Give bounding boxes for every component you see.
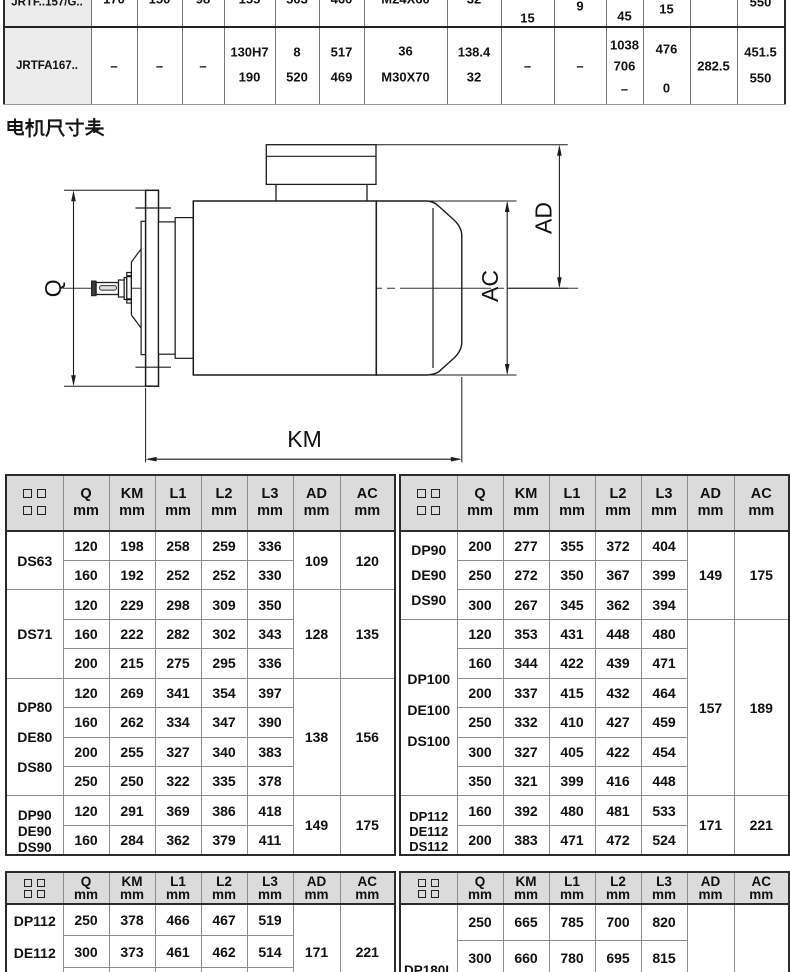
svg-text:AC: AC: [477, 270, 503, 302]
svg-text:KM: KM: [287, 426, 322, 452]
svg-text:AD: AD: [531, 202, 557, 234]
svg-text:Q: Q: [40, 279, 66, 297]
